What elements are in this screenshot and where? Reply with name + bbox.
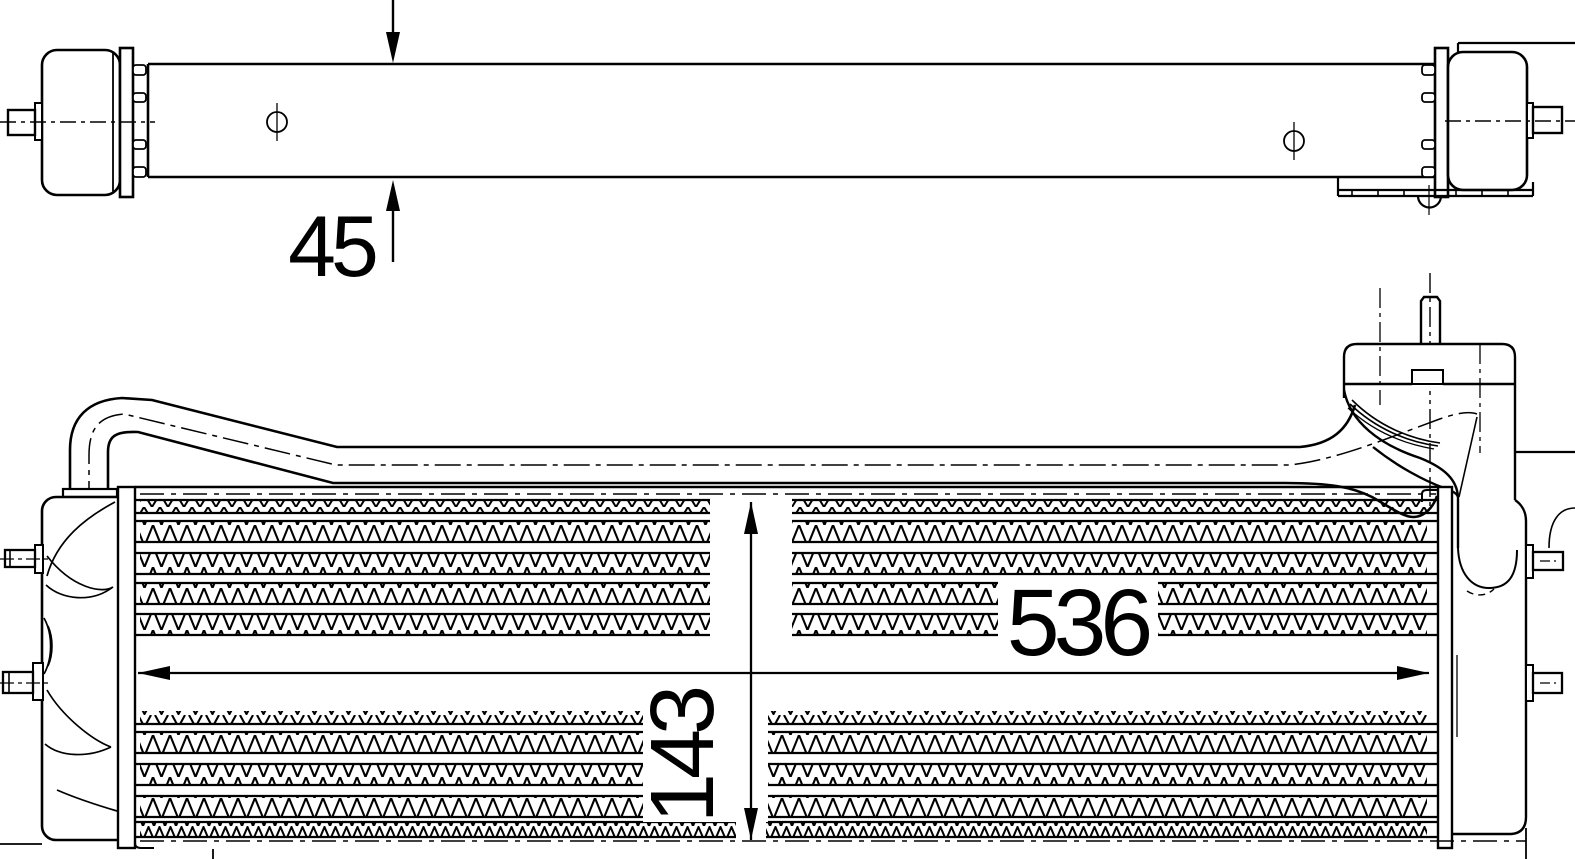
tank-top-cup-dashed	[1467, 589, 1494, 595]
right-tank-pins	[1526, 545, 1563, 701]
fitting-notch	[1412, 370, 1443, 384]
dim-143-label: 143	[633, 688, 733, 823]
core-header-right	[1438, 487, 1452, 848]
dim-536-arrow-right-icon	[1397, 666, 1429, 680]
dim-45-arrow-up-icon	[386, 180, 400, 211]
left-pin-lower-flange	[33, 663, 43, 700]
dim-536-arrow-left-icon	[138, 666, 170, 680]
dim-536-label: 536	[1007, 570, 1150, 676]
side-view-body	[148, 64, 1435, 177]
dimension-45: 45	[288, 0, 400, 295]
mount-hole-right	[1284, 122, 1304, 160]
pipe-centerline	[89, 413, 1477, 507]
side-view: 45	[0, 0, 1575, 295]
technical-drawing-canvas: 45	[0, 0, 1575, 859]
mount-hole-left	[267, 103, 287, 141]
tank-corner-arc	[1549, 508, 1575, 548]
dim-45-arrow-down-icon	[386, 32, 400, 63]
core-foot-left	[135, 837, 154, 848]
dim-45-label: 45	[288, 199, 376, 295]
front-view: 536 143	[0, 273, 1575, 859]
tank-top-cup	[1458, 548, 1517, 588]
core-header-left	[118, 487, 135, 848]
oil-cooler-drawing: 45	[0, 0, 1575, 859]
funnel-diagonal	[1459, 417, 1477, 497]
pipe-outer-line	[70, 398, 1355, 489]
